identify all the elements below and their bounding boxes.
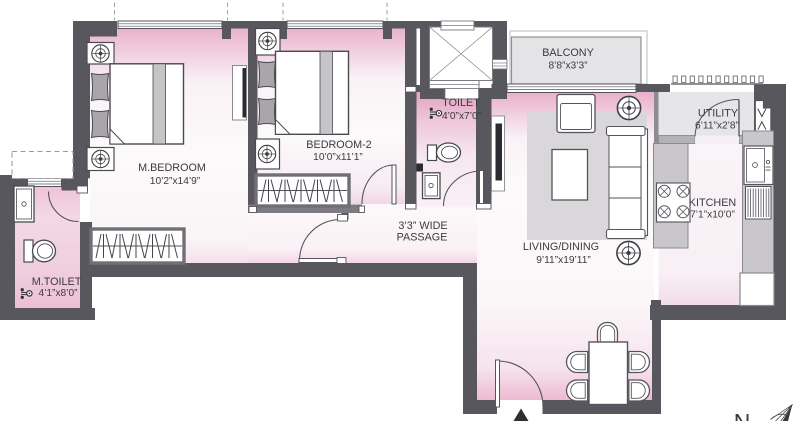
svg-text:8’8”x3’3”: 8’8”x3’3” [548, 61, 588, 72]
svg-text:BALCONY: BALCONY [542, 47, 594, 59]
svg-text:UTILITY: UTILITY [698, 108, 738, 120]
svg-text:10’0”x11’1”: 10’0”x11’1” [313, 152, 363, 163]
svg-text:N: N [734, 409, 751, 421]
svg-text:4’1”x8’0”: 4’1”x8’0” [38, 288, 78, 299]
svg-text:4’0”x7’0”: 4’0”x7’0” [442, 111, 482, 122]
svg-text:10’2”x14’9”: 10’2”x14’9” [150, 176, 201, 187]
svg-text:7’1”x10’0”: 7’1”x10’0” [690, 210, 735, 221]
svg-text:BEDROOM-2: BEDROOM-2 [306, 139, 371, 151]
svg-text:PASSAGE: PASSAGE [397, 232, 448, 244]
svg-text:M.TOILET: M.TOILET [32, 276, 82, 288]
svg-text:KITCHEN: KITCHEN [689, 197, 736, 209]
svg-text:3’3” WIDE: 3’3” WIDE [398, 220, 447, 232]
svg-text:M.BEDROOM: M.BEDROOM [138, 162, 206, 174]
svg-text:6’11”x2’8”: 6’11”x2’8” [695, 121, 740, 132]
svg-text:LIVING/DINING: LIVING/DINING [523, 241, 599, 253]
svg-text:TOILET: TOILET [442, 97, 480, 109]
svg-text:9’11”x19’11”: 9’11”x19’11” [536, 255, 591, 266]
